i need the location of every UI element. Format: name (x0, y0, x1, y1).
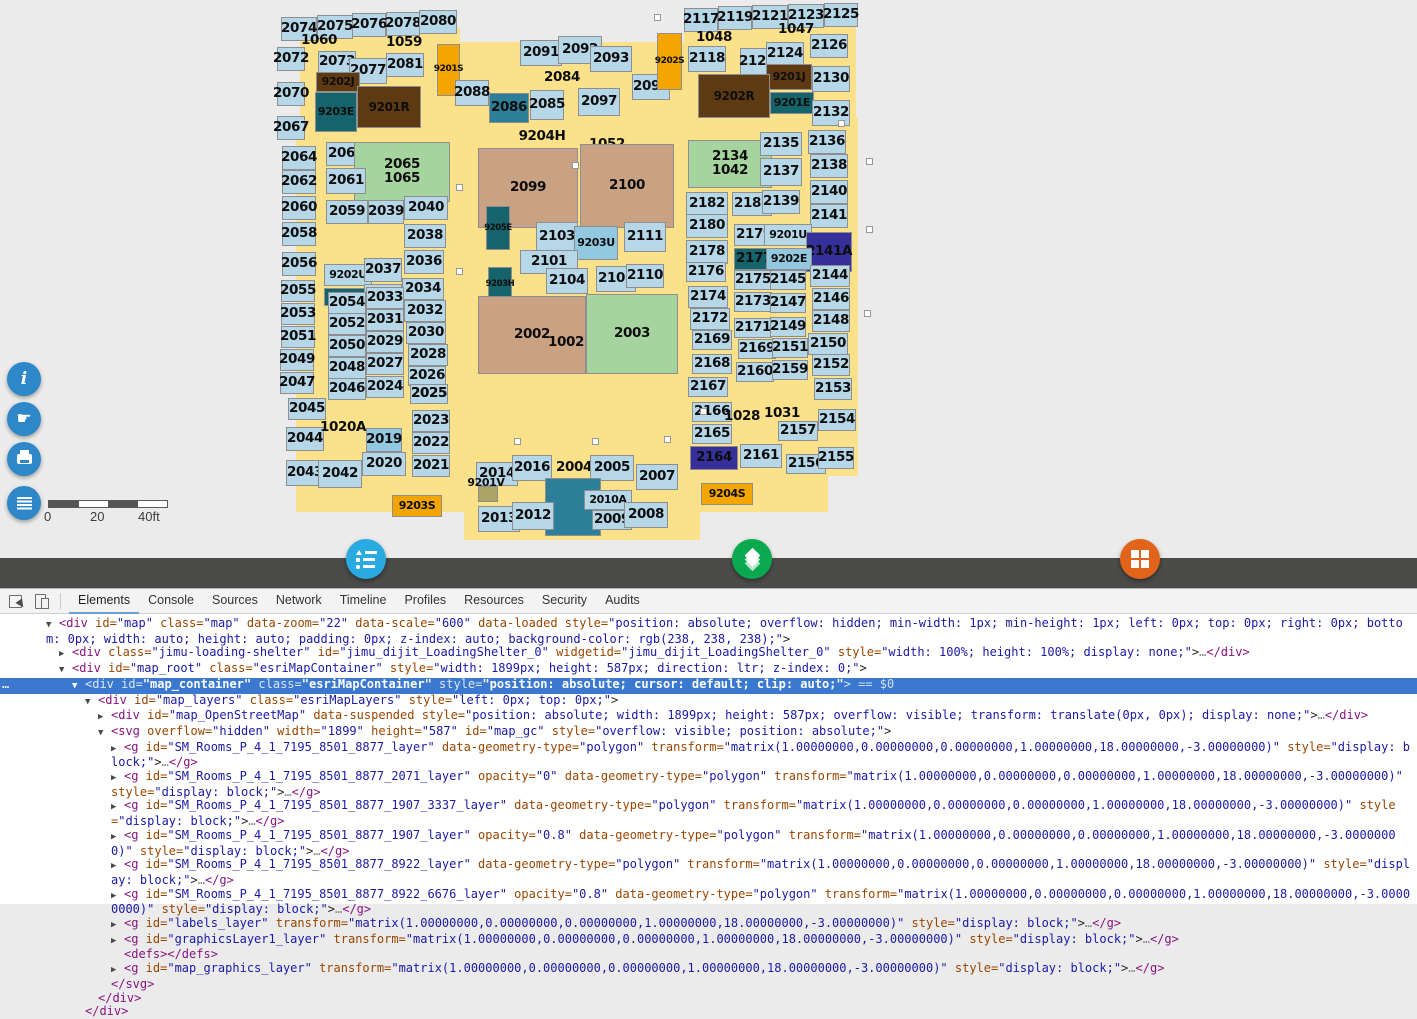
devtools-node[interactable]: ▶<g id="labels_layer" transform="matrix(… (0, 917, 1417, 933)
room-2118[interactable]: 2118 (688, 46, 726, 72)
room-9203U[interactable]: 9203U (574, 226, 618, 260)
twisty-icon[interactable]: ▼ (72, 680, 85, 694)
room-2085[interactable]: 2085 (530, 90, 564, 120)
twisty-icon[interactable]: ▼ (85, 696, 98, 710)
room-2070[interactable]: 2070 (277, 82, 305, 106)
twisty-icon[interactable]: ▶ (111, 890, 124, 904)
selection-handle[interactable] (664, 436, 671, 443)
devtools-node[interactable]: ▼<svg overflow="hidden" width="1899" hei… (0, 725, 1417, 741)
room-2040[interactable]: 2040 (404, 196, 448, 220)
room-2053[interactable]: 2053 (281, 303, 315, 325)
room-2153[interactable]: 2153 (814, 378, 852, 400)
room-2037[interactable]: 2037 (364, 258, 402, 282)
room-2176[interactable]: 2176 (686, 262, 726, 282)
device-toolbar-button[interactable] (34, 594, 50, 608)
room-2042[interactable]: 2042 (318, 460, 362, 488)
tab-security[interactable]: Security (533, 588, 596, 612)
room-2012[interactable]: 2012 (512, 502, 554, 530)
room-1002[interactable]: 1002 (546, 336, 586, 350)
list-button[interactable] (346, 539, 386, 579)
devtools-elements-tree: ▼<div id="map" class="map" data-zoom="22… (0, 614, 1417, 1019)
room-2052[interactable]: 2052 (328, 313, 366, 335)
room-2051[interactable]: 2051 (281, 326, 315, 348)
twisty-icon[interactable]: ▼ (46, 619, 59, 633)
room-2164[interactable]: 2164 (690, 446, 738, 470)
room-2144[interactable]: 2144 (810, 265, 850, 287)
room-2054[interactable]: 2054 (328, 292, 366, 314)
selection-handle[interactable] (572, 162, 579, 169)
room-2110[interactable]: 2110 (626, 264, 664, 288)
room-2023[interactable]: 2023 (412, 410, 450, 432)
grid-icon (1131, 550, 1149, 568)
devtools-tabbar: ElementsConsoleSourcesNetworkTimelinePro… (0, 589, 1417, 614)
room-2174[interactable]: 2174 (688, 286, 728, 308)
room-2149[interactable]: 2149 (770, 317, 806, 337)
room-2165[interactable]: 2165 (692, 424, 732, 444)
inspect-element-button[interactable] (9, 594, 25, 608)
room-2145[interactable]: 2145 (770, 270, 806, 290)
devtools-node[interactable]: ▶<g id="SM_Rooms_P_4_1_7195_8501_8877_20… (0, 770, 1417, 799)
twisty-icon[interactable]: ▶ (98, 711, 111, 725)
room-9204S[interactable]: 9204S (701, 483, 753, 505)
room-2060[interactable]: 2060 (282, 196, 316, 220)
room-9202S[interactable]: 9202S (657, 33, 682, 90)
devtools-node[interactable]: </div> (0, 1005, 1417, 1019)
tracking-button[interactable]: ☛ (7, 402, 41, 436)
tab-timeline[interactable]: Timeline (331, 588, 396, 612)
room-9201J[interactable]: 9201J (766, 64, 812, 90)
room-2147[interactable]: 2147 (770, 293, 806, 313)
layers-icon (743, 550, 761, 568)
room-2055[interactable]: 2055 (281, 280, 315, 302)
room-2076[interactable]: 2076 (352, 13, 386, 37)
room-2136[interactable]: 2136 (808, 130, 846, 154)
room-2084[interactable]: 2084 (540, 71, 584, 85)
room-2119[interactable]: 2119 (718, 6, 752, 30)
room-1031[interactable]: 1031 (762, 407, 802, 421)
room-2171[interactable]: 2171 (734, 318, 772, 338)
room-2039[interactable]: 2039 (368, 200, 404, 224)
twisty-icon[interactable]: ▶ (111, 772, 124, 786)
scale-40ft: 40ft (138, 509, 160, 524)
room-2100[interactable]: 2100 (580, 144, 674, 228)
tab-sources[interactable]: Sources (203, 588, 267, 612)
room-2159[interactable]: 2159 (772, 360, 808, 380)
room-2033[interactable]: 2033 (366, 287, 404, 309)
room-2160[interactable]: 2160 (736, 362, 774, 382)
room-2103[interactable]: 2103 (536, 222, 578, 252)
tabbar-divider (60, 593, 61, 609)
tab-profiles[interactable]: Profiles (395, 588, 455, 612)
devtools-node[interactable]: ▶<g id="map_graphics_layer" transform="m… (0, 962, 1417, 978)
room-9201E[interactable]: 9201E (770, 92, 814, 114)
selection-handle[interactable] (864, 310, 871, 317)
room-2169[interactable]: 2169 (692, 330, 732, 350)
room-2138[interactable]: 2138 (810, 154, 848, 178)
twisty-icon[interactable]: ▶ (111, 860, 124, 874)
tab-audits[interactable]: Audits (596, 588, 649, 612)
room-2157[interactable]: 2157 (778, 421, 818, 441)
room-2067[interactable]: 2067 (277, 116, 305, 140)
room-2086[interactable]: 2086 (489, 93, 529, 123)
room-9202R[interactable]: 9202R (698, 74, 770, 118)
devtools-node[interactable]: ▼<div id="map" class="map" data-zoom="22… (0, 617, 1417, 646)
twisty-icon[interactable]: ▶ (59, 648, 72, 662)
room-2175[interactable]: 2175 (734, 270, 772, 290)
twisty-icon[interactable]: ▼ (59, 664, 72, 678)
room-2045[interactable]: 2045 (288, 398, 326, 420)
twisty-icon[interactable]: ▶ (111, 935, 124, 949)
room-2140[interactable]: 2140 (810, 180, 848, 204)
room-2021[interactable]: 2021 (412, 455, 450, 477)
room-2061[interactable]: 2061 (326, 168, 366, 194)
info-button[interactable]: i (7, 362, 41, 396)
twisty-icon[interactable]: ▶ (111, 743, 124, 757)
selection-handle[interactable] (592, 438, 599, 445)
twisty-icon[interactable]: ▶ (111, 831, 124, 845)
room-2104[interactable]: 2104 (546, 268, 588, 294)
devtools-node-selected[interactable]: …▼<div id="map_container" class="esriMap… (0, 678, 1417, 694)
bottom-toolbar (0, 558, 1417, 588)
room-1059[interactable]: 1059 (384, 36, 424, 50)
room-2029[interactable]: 2029 (366, 331, 404, 353)
devtools-node[interactable]: ▶<g id="SM_Rooms_P_4_1_7195_8501_8877_19… (0, 829, 1417, 858)
room-2146[interactable]: 2146 (812, 288, 850, 310)
selection-handle[interactable] (866, 226, 873, 233)
devtools-node[interactable]: ▶<g id="SM_Rooms_P_4_1_7195_8501_8877_19… (0, 799, 1417, 828)
room-1048[interactable]: 1048 (694, 31, 734, 45)
room-2151[interactable]: 2151 (772, 338, 808, 358)
room-2130[interactable]: 2130 (812, 66, 850, 92)
tab-network[interactable]: Network (267, 588, 331, 612)
room-2003[interactable]: 2003 (586, 294, 678, 374)
table-icon (17, 497, 32, 510)
room-2062[interactable]: 2062 (282, 170, 316, 194)
room-2008[interactable]: 2008 (624, 502, 668, 528)
overflow-ellipsis: … (2, 678, 10, 692)
room-9204H[interactable]: 9204H (516, 130, 568, 144)
twisty-icon[interactable]: ▶ (111, 919, 124, 933)
tab-console[interactable]: Console (139, 588, 203, 612)
room-2047[interactable]: 2047 (280, 372, 314, 394)
devtools-node[interactable]: ▶<g id="SM_Rooms_P_4_1_7195_8501_8877_89… (0, 858, 1417, 887)
room-2125[interactable]: 2125 (824, 3, 858, 27)
room-2154[interactable]: 2154 (818, 409, 856, 431)
devtools-node[interactable]: </svg> (0, 978, 1417, 992)
room-2152[interactable]: 2152 (812, 354, 850, 376)
room-2064[interactable]: 2064 (282, 146, 316, 170)
room-2065[interactable]: 2065 1065 (354, 142, 450, 202)
devtools-node[interactable]: <defs></defs> (0, 948, 1417, 962)
room-9201R[interactable]: 9201R (357, 86, 421, 128)
devtools-tabs: ElementsConsoleSourcesNetworkTimelinePro… (69, 588, 649, 614)
room-2019[interactable]: 2019 (366, 428, 402, 452)
print-icon (17, 454, 32, 464)
room-2137[interactable]: 2137 (760, 158, 802, 186)
room-2139[interactable]: 2139 (762, 190, 800, 214)
room-2032[interactable]: 2032 (404, 300, 446, 322)
room-2081[interactable]: 2081 (386, 53, 424, 77)
room-2167[interactable]: 2167 (688, 377, 728, 397)
room-2050[interactable]: 2050 (328, 335, 366, 357)
devtools-node[interactable]: ▼<div id="map_layers" class="esriMapLaye… (0, 694, 1417, 710)
room-2031[interactable]: 2031 (366, 309, 404, 331)
room-2097[interactable]: 2097 (578, 88, 620, 116)
room-1028[interactable]: 1028 (722, 410, 762, 424)
room-2027[interactable]: 2027 (366, 353, 404, 375)
room-2059[interactable]: 2059 (326, 200, 368, 224)
room-2091[interactable]: 2091 (520, 40, 562, 66)
room-2135[interactable]: 2135 (760, 132, 802, 156)
devtools-node[interactable]: ▶<g id="SM_Rooms_P_4_1_7195_8501_8877_la… (0, 741, 1417, 770)
room-1060[interactable]: 1060 (298, 34, 340, 48)
twisty-icon[interactable]: ▶ (111, 801, 124, 815)
map-shape[interactable] (478, 486, 498, 502)
list-icon (356, 550, 377, 569)
devtools-node[interactable]: ▶<g id="SM_Rooms_P_4_1_7195_8501_8877_89… (0, 888, 1417, 917)
scale-0: 0 (44, 509, 51, 524)
scale-20: 20 (90, 509, 104, 524)
room-2178[interactable]: 2178 (686, 240, 728, 264)
layers-button[interactable] (732, 539, 772, 579)
room-2111[interactable]: 2111 (624, 222, 666, 252)
room-2025[interactable]: 2025 (410, 384, 448, 404)
room-9205E[interactable]: 9205E (486, 206, 510, 250)
room-2072[interactable]: 2072 (277, 47, 305, 71)
legend-button[interactable] (7, 486, 41, 520)
selection-handle[interactable] (700, 408, 707, 415)
room-9203S[interactable]: 9203S (392, 495, 442, 517)
selection-handle[interactable] (514, 438, 521, 445)
twisty-icon[interactable]: ▼ (98, 727, 111, 741)
room-2036[interactable]: 2036 (404, 250, 444, 274)
hand-pointer-icon: ☛ (16, 409, 31, 429)
room-2150[interactable]: 2150 (808, 333, 848, 355)
print-button[interactable] (7, 442, 41, 476)
room-2126[interactable]: 2126 (810, 34, 848, 58)
room-2007[interactable]: 2007 (636, 464, 678, 490)
room-2028[interactable]: 2028 (408, 344, 448, 366)
selection-handle[interactable] (838, 120, 845, 127)
room-2078[interactable]: 2078 (386, 12, 420, 36)
devtools-node[interactable]: ▶<div id="map_OpenStreetMap" data-suspen… (0, 709, 1417, 725)
room-2048[interactable]: 2048 (328, 357, 366, 379)
room-2161[interactable]: 2161 (740, 444, 782, 468)
room-2148[interactable]: 2148 (812, 310, 850, 332)
room-2182[interactable]: 2182 (686, 192, 728, 216)
room-9203E[interactable]: 9203E (315, 92, 357, 132)
room-2056[interactable]: 2056 (282, 252, 316, 276)
devtools-node[interactable]: ▶<g id="graphicsLayer1_layer" transform=… (0, 933, 1417, 949)
scale-bar (48, 500, 168, 508)
room-2026[interactable]: 2026 (408, 366, 446, 386)
room-1020A[interactable]: 1020A (318, 421, 368, 435)
devtools-node[interactable]: </div> (0, 992, 1417, 1006)
room-2141[interactable]: 2141 (810, 204, 848, 228)
room-9202E[interactable]: 9202E (766, 248, 812, 270)
devtools-node[interactable]: ▶<div class="jimu-loading-shelter" id="j… (0, 646, 1417, 662)
room-2169[interactable]: 2169 (738, 339, 776, 359)
room-2124[interactable]: 2124 (766, 42, 804, 66)
room-2034[interactable]: 2034 (402, 278, 444, 300)
room-2038[interactable]: 2038 (404, 224, 446, 248)
room-2022[interactable]: 2022 (412, 432, 450, 454)
room-2046[interactable]: 2046 (328, 378, 366, 400)
tab-elements[interactable]: Elements (69, 588, 139, 614)
selection-handle[interactable] (866, 158, 873, 165)
room-2168[interactable]: 2168 (692, 354, 732, 374)
selection-handle[interactable] (654, 14, 661, 21)
apps-button[interactable] (1120, 539, 1160, 579)
room-2088[interactable]: 2088 (455, 80, 489, 106)
twisty-icon[interactable]: ▶ (111, 964, 124, 978)
selection-handle[interactable] (456, 268, 463, 275)
devtools-panel: ElementsConsoleSourcesNetworkTimelinePro… (0, 588, 1417, 904)
room-2080[interactable]: 2080 (419, 10, 457, 34)
room-9201U[interactable]: 9201U (764, 224, 812, 246)
room-2172[interactable]: 2172 (690, 308, 730, 330)
room-2180[interactable]: 2180 (686, 214, 728, 238)
room-2058[interactable]: 2058 (282, 222, 316, 246)
room-2093[interactable]: 2093 (590, 46, 632, 72)
devtools-node[interactable]: ▼<div id="map_root" class="esriMapContai… (0, 662, 1417, 678)
room-9202J[interactable]: 9202J (316, 72, 360, 92)
room-2049[interactable]: 2049 (280, 349, 314, 371)
room-2020[interactable]: 2020 (362, 452, 406, 476)
room-2155[interactable]: 2155 (818, 447, 854, 469)
info-icon: i (21, 369, 27, 389)
room-2173[interactable]: 2173 (734, 292, 772, 312)
tab-resources[interactable]: Resources (455, 588, 533, 612)
selection-handle[interactable] (456, 184, 463, 191)
room-2030[interactable]: 2030 (406, 322, 446, 344)
room-2024[interactable]: 2024 (366, 376, 404, 398)
floorplan-map[interactable]: 2074207520762078208010602072207320771059… (0, 0, 1417, 558)
